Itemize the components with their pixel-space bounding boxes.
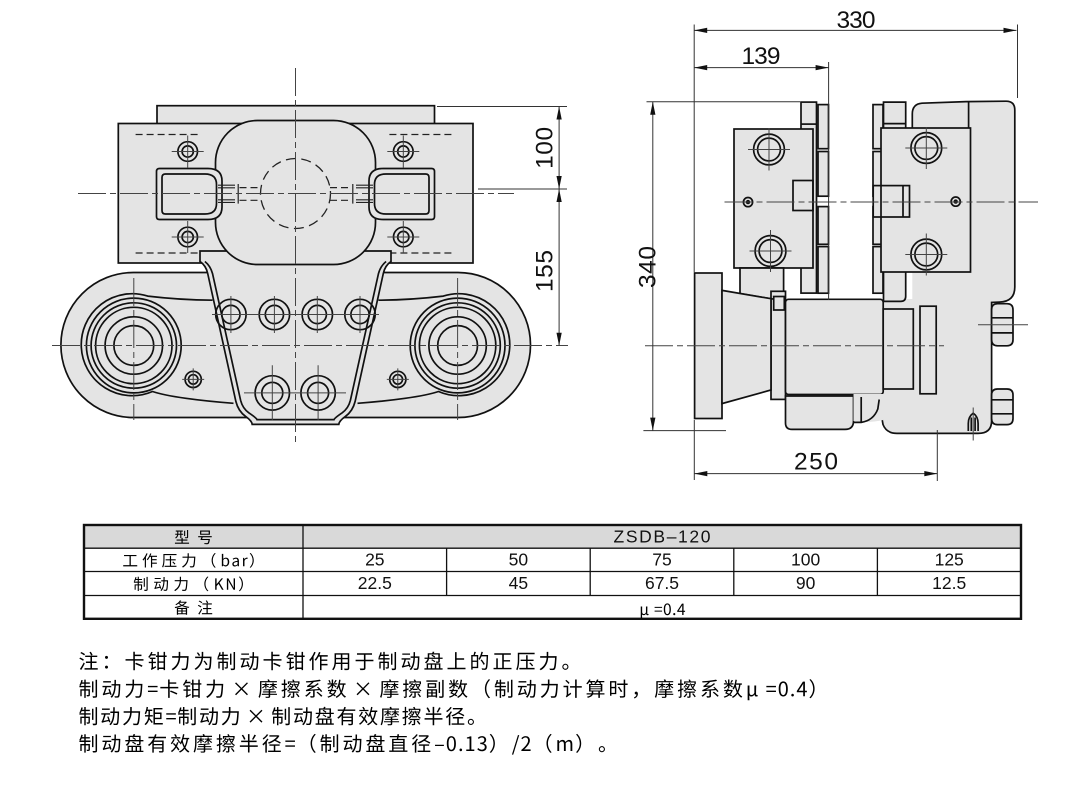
- svg-text:22.5: 22.5: [358, 573, 392, 593]
- svg-text:100: 100: [532, 127, 559, 169]
- svg-text:67.5: 67.5: [645, 573, 679, 593]
- svg-text:25: 25: [365, 550, 384, 570]
- svg-text:ZSDB–120: ZSDB–120: [614, 527, 711, 547]
- svg-text:340: 340: [635, 246, 662, 288]
- svg-text:75: 75: [652, 550, 671, 570]
- svg-text:155: 155: [532, 250, 559, 292]
- svg-text:139: 139: [742, 43, 781, 70]
- svg-text:45: 45: [509, 573, 528, 593]
- svg-text:250: 250: [794, 448, 838, 475]
- svg-text:12.5: 12.5: [932, 573, 966, 593]
- svg-text:90: 90: [796, 573, 816, 593]
- svg-text:125: 125: [935, 550, 964, 570]
- svg-text:50: 50: [509, 550, 529, 570]
- svg-text:100: 100: [791, 550, 820, 570]
- svg-text:330: 330: [837, 7, 876, 34]
